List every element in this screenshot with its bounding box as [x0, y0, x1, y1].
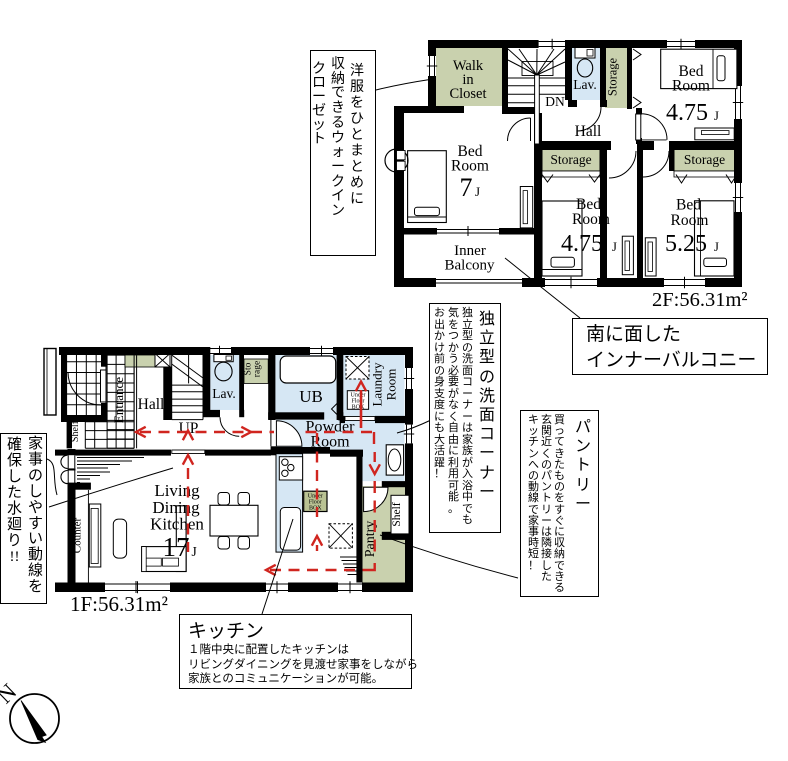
svg-text:Storage: Storage [684, 152, 725, 167]
svg-text:Lav.: Lav. [212, 386, 236, 401]
svg-text:4.75: 4.75 [561, 231, 603, 257]
svg-text:Lav.: Lav. [573, 77, 597, 92]
svg-text:Room: Room [572, 211, 610, 228]
svg-text:J: J [714, 240, 719, 254]
svg-text:Hall: Hall [575, 123, 602, 140]
svg-text:4.75: 4.75 [666, 100, 708, 126]
svg-text:Counter: Counter [72, 517, 84, 553]
svg-text:J: J [612, 240, 617, 254]
svg-text:Shelf: Shelf [391, 502, 403, 526]
svg-text:Entrance: Entrance [111, 377, 126, 423]
svg-text:N: N [0, 679, 22, 709]
svg-text:J: J [475, 184, 480, 199]
svg-text:5.25: 5.25 [665, 231, 707, 257]
svg-text:Room: Room [672, 78, 710, 95]
svg-text:Balcony: Balcony [445, 258, 495, 274]
svg-text:Bed: Bed [676, 197, 701, 214]
svg-text:Room: Room [671, 212, 709, 229]
svg-text:7: 7 [460, 173, 473, 202]
svg-text:DN: DN [545, 94, 565, 109]
svg-text:J: J [192, 544, 197, 559]
svg-text:Hall: Hall [138, 396, 165, 413]
svg-text:J: J [714, 109, 719, 123]
svg-text:Storage: Storage [606, 57, 620, 96]
svg-text:BOX: BOX [309, 506, 322, 512]
svg-text:BOX: BOX [352, 405, 365, 411]
svg-text:Kitchen: Kitchen [150, 515, 204, 534]
svg-text:2F:56.31m²: 2F:56.31m² [652, 289, 748, 311]
svg-text:Room: Room [451, 158, 489, 175]
svg-text:Laundry: Laundry [370, 362, 385, 407]
svg-text:Shelf: Shelf [70, 420, 81, 442]
svg-text:1F:56.31m²: 1F:56.31m² [70, 592, 168, 616]
svg-text:Storage: Storage [550, 152, 591, 167]
svg-text:Room: Room [384, 369, 399, 401]
svg-text:UB: UB [299, 387, 323, 406]
svg-text:UP: UP [179, 420, 199, 437]
svg-text:Closet: Closet [449, 86, 486, 102]
svg-text:rage: rage [253, 361, 263, 377]
svg-text:17: 17 [163, 532, 190, 562]
